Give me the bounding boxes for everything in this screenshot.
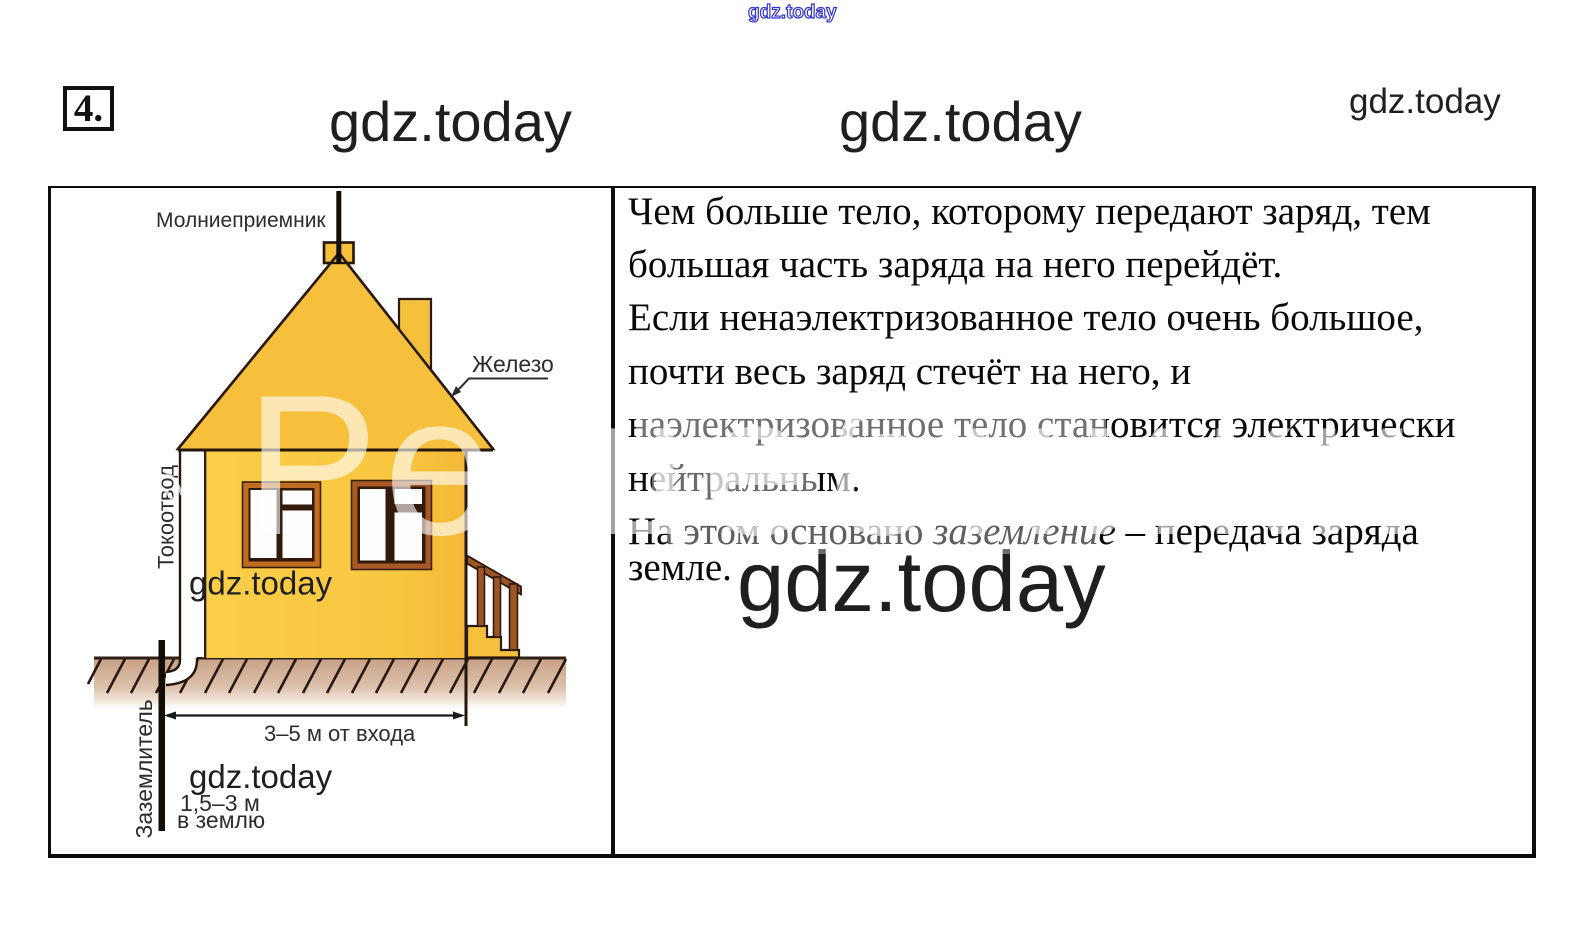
svg-text:Молниеприемник: Молниеприемник <box>156 209 326 232</box>
svg-text:3–5 м от входа: 3–5 м от входа <box>264 721 416 746</box>
svg-text:в землю: в землю <box>177 807 265 833</box>
svg-text:Заземлитель: Заземлитель <box>131 699 157 838</box>
svg-text:gdz.today: gdz.today <box>189 758 333 795</box>
